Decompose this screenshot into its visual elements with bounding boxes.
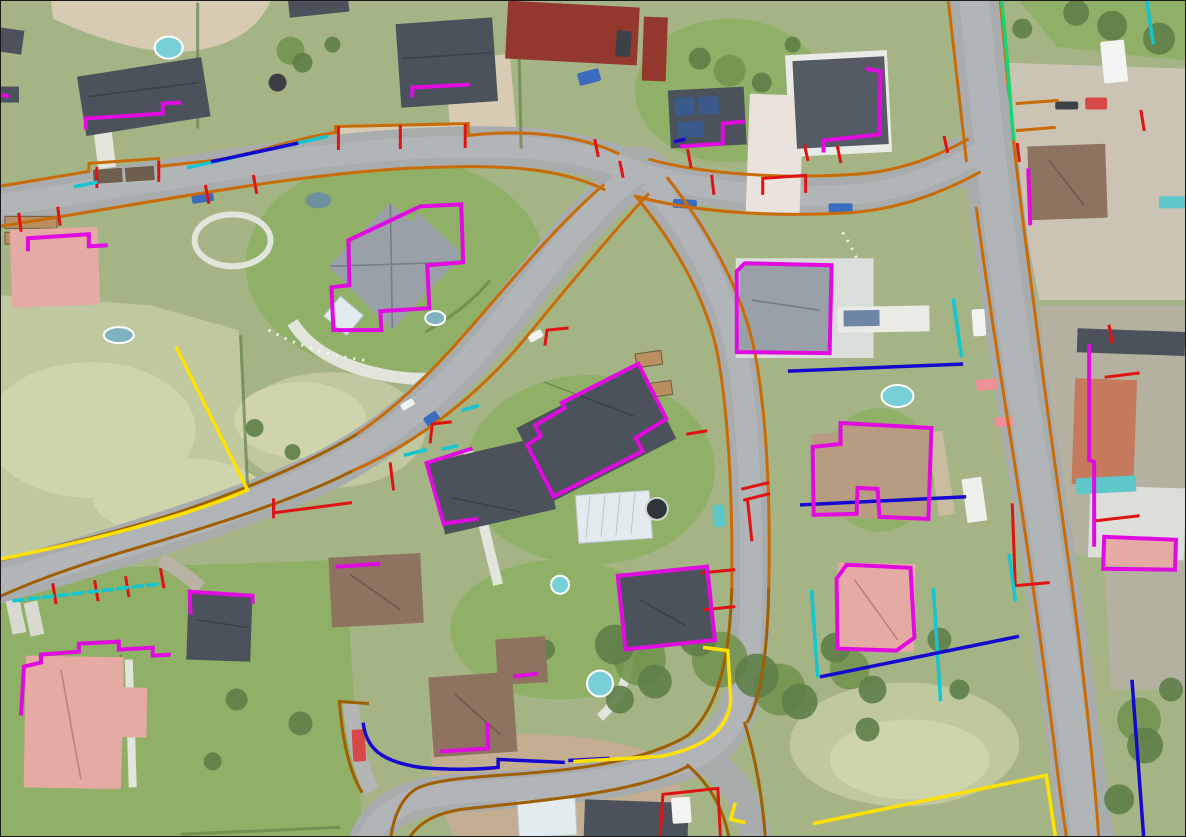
orthophoto-scene: [1, 1, 1185, 836]
container: [1159, 196, 1185, 208]
round-pool: [646, 498, 668, 520]
house-roof: [1027, 144, 1107, 221]
building-outline: [1, 95, 9, 97]
house-roof: [836, 563, 915, 652]
container: [1076, 475, 1137, 494]
layer-roofs-tile: [1071, 378, 1137, 486]
truck: [1100, 40, 1128, 84]
car: [1055, 102, 1078, 110]
layer-roofs-tan: [810, 422, 933, 522]
car: [994, 416, 1014, 428]
pool: [882, 385, 914, 407]
car: [615, 30, 632, 57]
house-roof: [620, 569, 713, 647]
house-roof: [1071, 378, 1137, 486]
car: [671, 797, 692, 824]
pool: [587, 671, 613, 697]
map-canvas[interactable]: [0, 0, 1186, 837]
car: [829, 203, 853, 212]
pool: [155, 37, 183, 59]
truck: [1085, 98, 1107, 110]
van: [971, 309, 986, 337]
trampoline: [269, 74, 287, 92]
house-roof: [10, 227, 101, 308]
pool: [551, 576, 569, 594]
pond: [425, 311, 445, 325]
car: [712, 505, 725, 528]
car: [976, 378, 998, 391]
pond: [104, 327, 134, 343]
house-roof: [495, 636, 548, 685]
house-roof: [24, 656, 124, 789]
pond: [305, 192, 331, 208]
building-outline: [1028, 168, 1030, 225]
house-roof: [810, 422, 933, 522]
